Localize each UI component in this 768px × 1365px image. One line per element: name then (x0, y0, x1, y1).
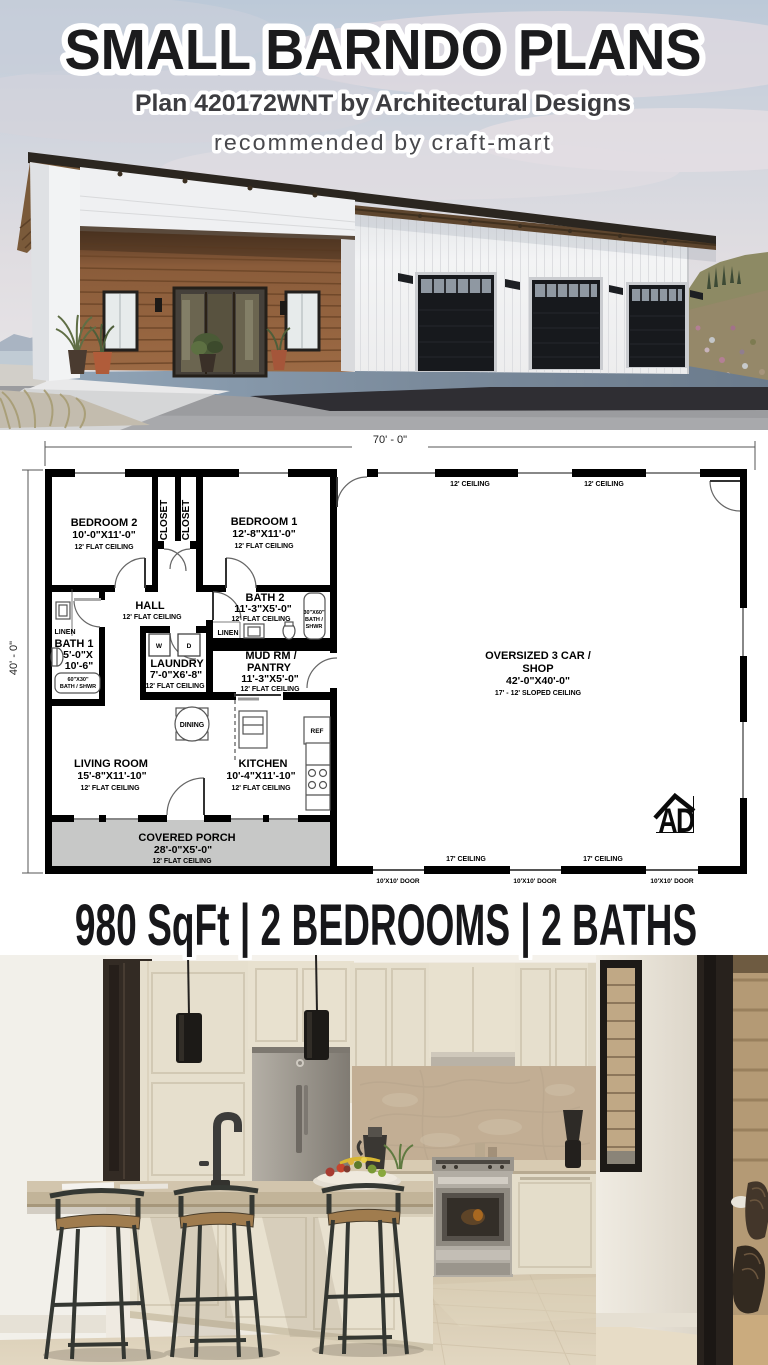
svg-text:30"X60": 30"X60" (303, 610, 325, 616)
svg-text:12' FLAT CEILING: 12' FLAT CEILING (80, 785, 140, 792)
svg-text:60"X30": 60"X30" (67, 677, 89, 683)
svg-text:70' - 0": 70' - 0" (373, 434, 407, 446)
svg-text:10'-6": 10'-6" (65, 660, 94, 672)
svg-text:CLOSET: CLOSET (159, 500, 170, 541)
svg-text:HALL: HALL (135, 600, 165, 612)
svg-text:17' CEILING: 17' CEILING (583, 856, 623, 863)
svg-text:LIVING ROOM: LIVING ROOM (74, 758, 148, 770)
svg-text:OVERSIZED 3 CAR /: OVERSIZED 3 CAR / (485, 650, 591, 662)
svg-text:BEDROOM 2: BEDROOM 2 (71, 517, 138, 529)
svg-text:Plan 420172WNT by Architectura: Plan 420172WNT by Architectural Designs (135, 90, 631, 117)
svg-text:DINING: DINING (180, 722, 205, 729)
svg-text:17' CEILING: 17' CEILING (446, 856, 486, 863)
svg-text:10'-4"X11'-10": 10'-4"X11'-10" (226, 770, 295, 782)
svg-text:10'X10' DOOR: 10'X10' DOOR (513, 878, 556, 885)
svg-text:42'-0"X40'-0": 42'-0"X40'-0" (506, 675, 570, 687)
svg-text:40' - 0": 40' - 0" (8, 641, 20, 675)
svg-text:28'-0"X5'-0": 28'-0"X5'-0" (154, 844, 212, 856)
svg-text:10'-0"X11'-0": 10'-0"X11'-0" (72, 529, 135, 541)
svg-text:12' CEILING: 12' CEILING (450, 481, 490, 488)
svg-text:CLOSET: CLOSET (181, 500, 192, 541)
svg-text:LINEN: LINEN (55, 629, 76, 636)
svg-text:SHOP: SHOP (522, 663, 553, 675)
svg-text:10'X10' DOOR: 10'X10' DOOR (650, 878, 693, 885)
svg-text:AD: AD (658, 802, 694, 840)
svg-text:12' FLAT CEILING: 12' FLAT CEILING (74, 544, 134, 551)
svg-text:12' FLAT CEILING: 12' FLAT CEILING (231, 785, 291, 792)
svg-text:BATH /: BATH / (305, 617, 323, 623)
svg-text:SHWR: SHWR (306, 624, 323, 630)
svg-text:D: D (187, 643, 192, 650)
svg-text:11'-3"X5'-0": 11'-3"X5'-0" (234, 603, 292, 615)
svg-text:MUD RM /: MUD RM / (245, 650, 296, 662)
svg-text:KITCHEN: KITCHEN (239, 758, 288, 770)
svg-text:12'-8"X11'-0": 12'-8"X11'-0" (232, 528, 295, 540)
svg-text:COVERED PORCH: COVERED PORCH (138, 832, 235, 844)
svg-text:BEDROOM 1: BEDROOM 1 (231, 516, 298, 528)
svg-text:12' FLAT CEILING: 12' FLAT CEILING (145, 683, 205, 690)
svg-text:15'-8"X11'-10": 15'-8"X11'-10" (77, 770, 146, 782)
svg-text:7'-0"X6'-8": 7'-0"X6'-8" (150, 669, 202, 681)
svg-text:LINEN: LINEN (218, 630, 239, 637)
svg-text:12' CEILING: 12' CEILING (584, 481, 624, 488)
svg-text:12' FLAT CEILING: 12' FLAT CEILING (152, 858, 212, 865)
svg-text:12' FLAT CEILING: 12' FLAT CEILING (240, 686, 300, 693)
svg-text:12' FLAT CEILING: 12' FLAT CEILING (234, 543, 294, 550)
svg-text:BATH / SHWR: BATH / SHWR (60, 684, 96, 690)
svg-text:10'X10' DOOR: 10'X10' DOOR (376, 878, 419, 885)
svg-text:recommended by craft-mart: recommended by craft-mart (214, 130, 552, 155)
svg-text:12' FLAT CEILING: 12' FLAT CEILING (122, 614, 182, 621)
svg-text:11'-3"X5'-0": 11'-3"X5'-0" (241, 673, 299, 685)
svg-text:W: W (156, 643, 163, 650)
svg-text:17' - 12' SLOPED CEILING: 17' - 12' SLOPED CEILING (495, 690, 582, 697)
svg-text:SMALL BARNDO PLANS: SMALL BARNDO PLANS (65, 18, 702, 82)
svg-text:980 SqFt | 2 BEDROOMS | 2 BATH: 980 SqFt | 2 BEDROOMS | 2 BATHS (75, 894, 697, 958)
svg-text:REF: REF (311, 728, 324, 735)
svg-text:12' FLAT CEILING: 12' FLAT CEILING (231, 616, 291, 623)
